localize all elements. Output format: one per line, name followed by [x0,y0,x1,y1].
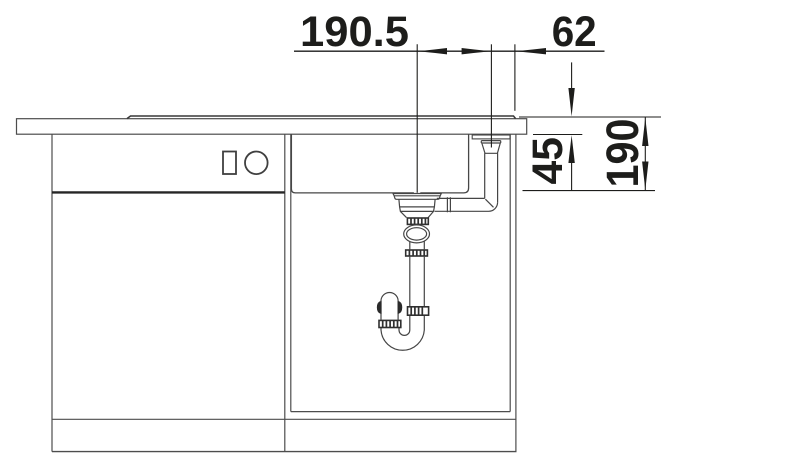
svg-text:190.5: 190.5 [300,8,409,56]
svg-text:62: 62 [552,8,597,56]
svg-text:190: 190 [597,119,648,188]
svg-text:45: 45 [524,137,572,185]
